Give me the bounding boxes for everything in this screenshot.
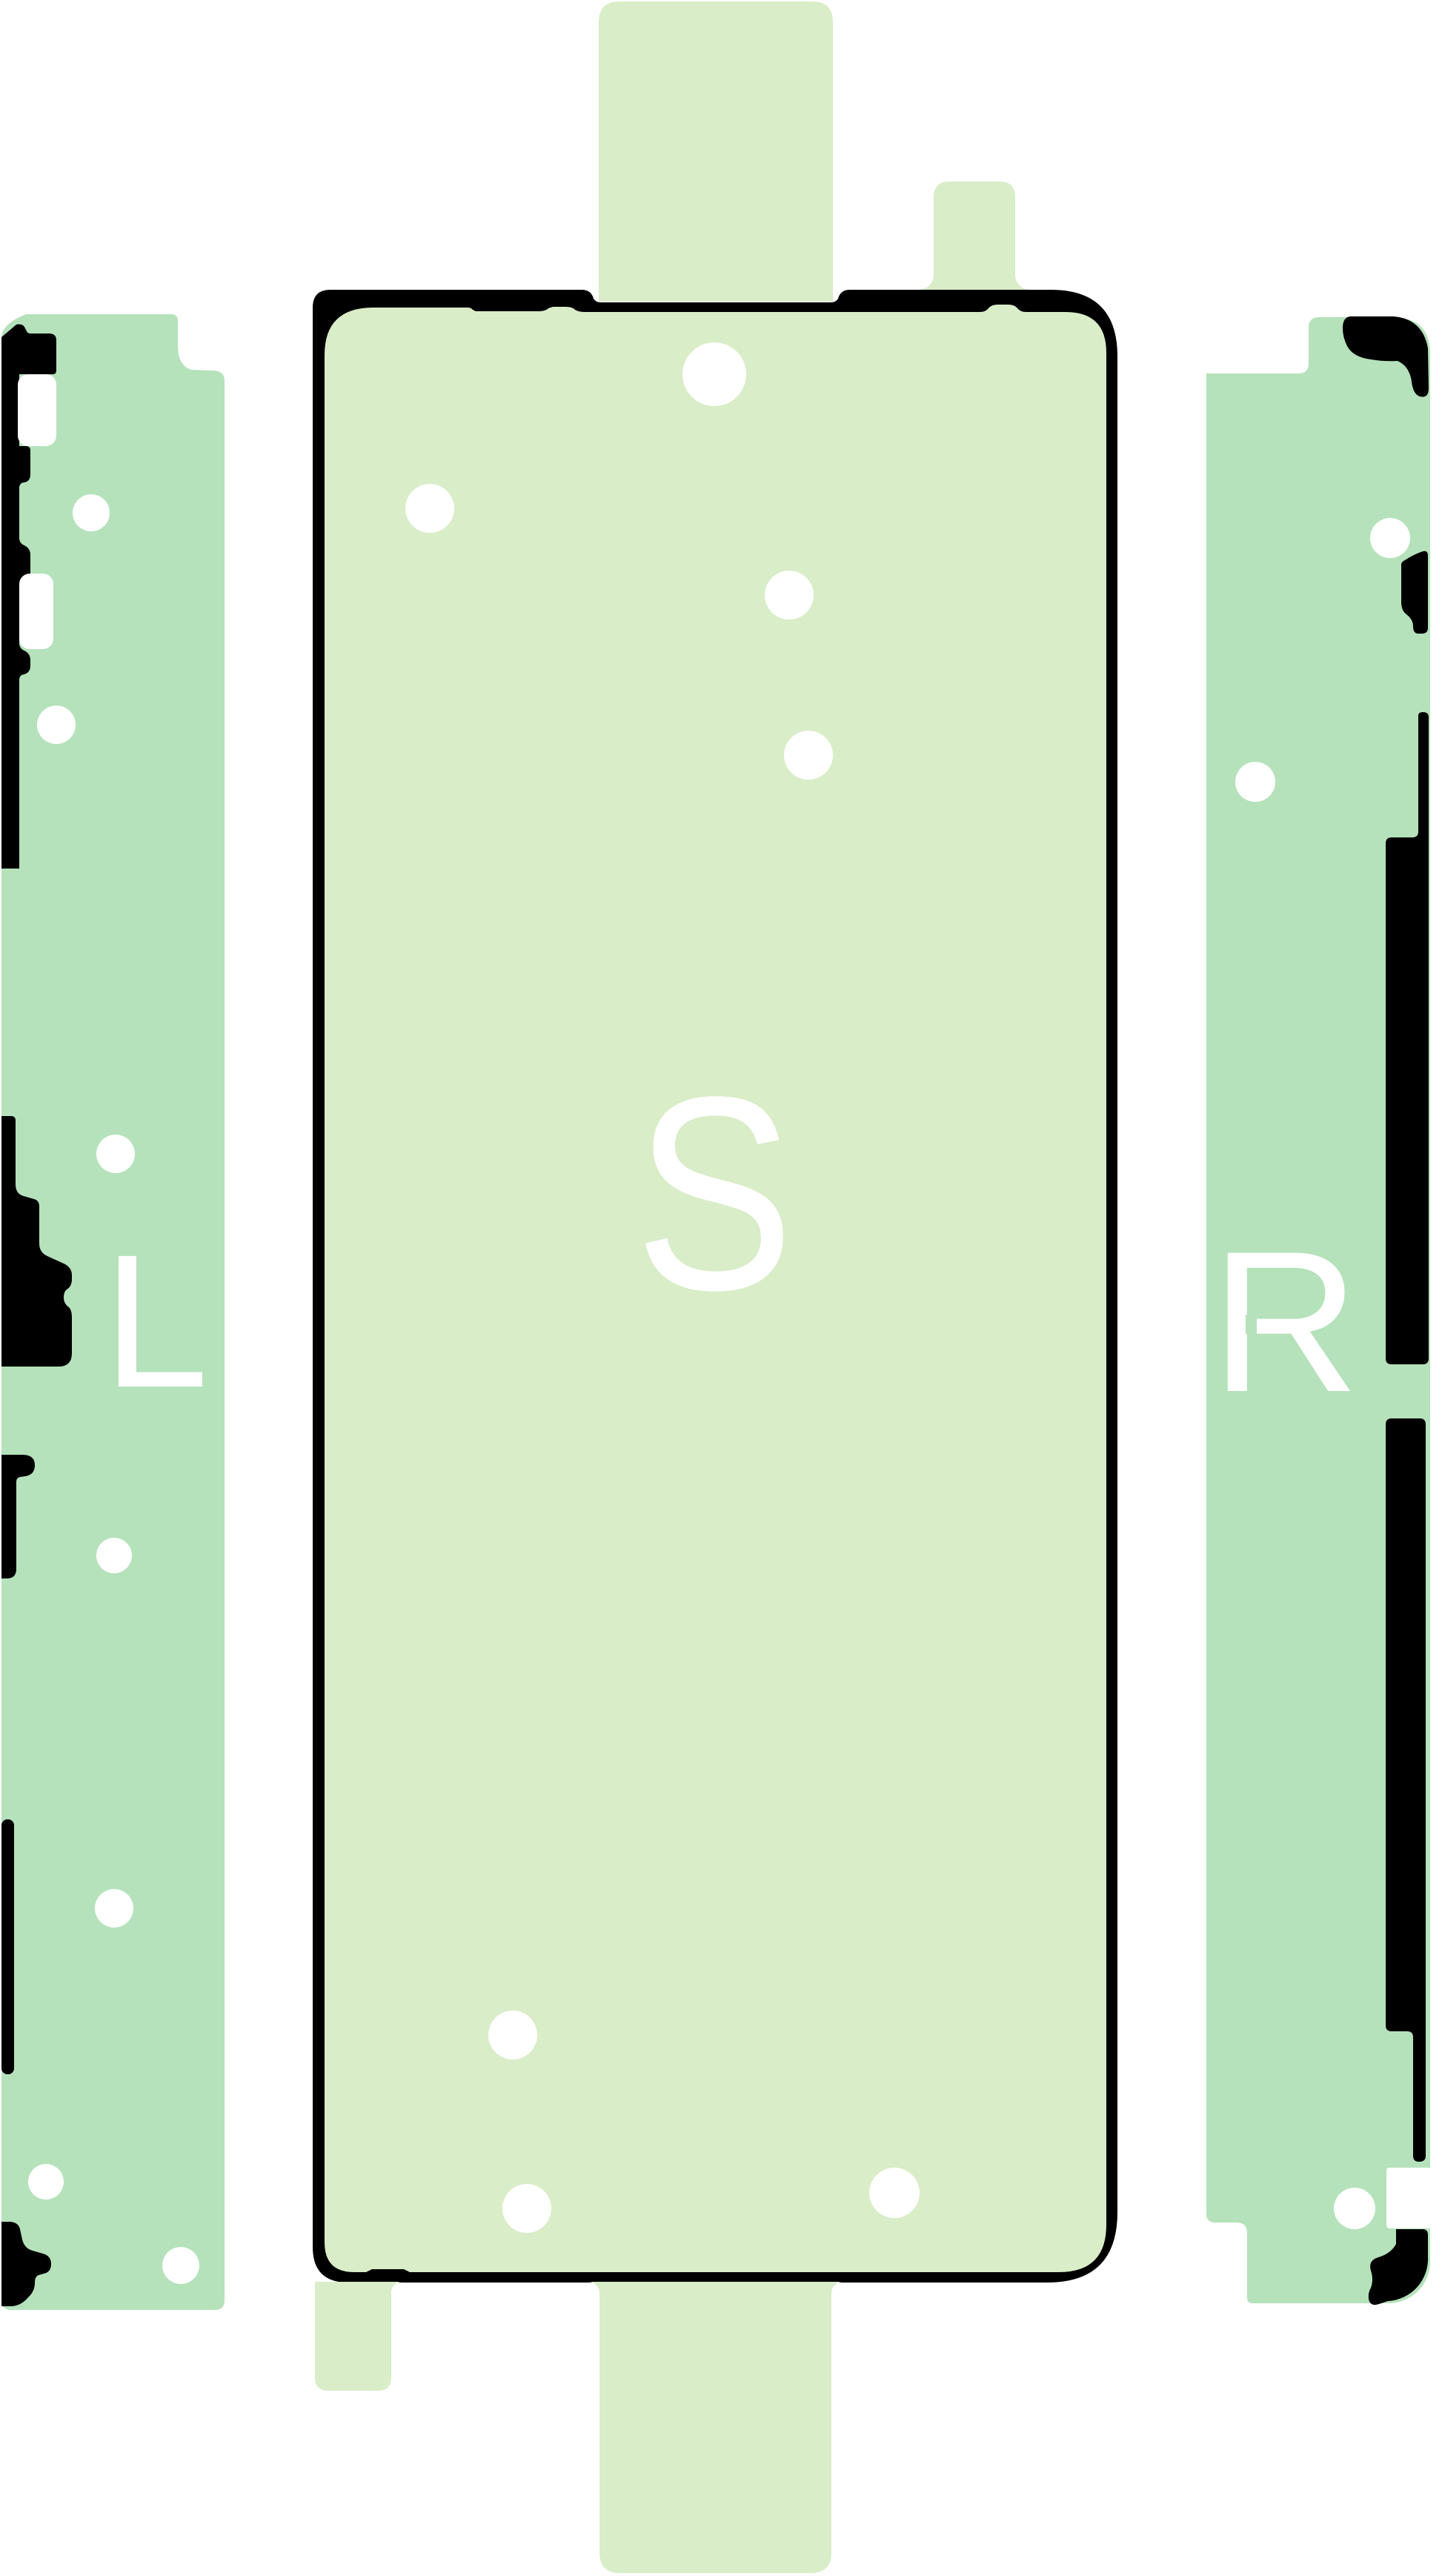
svg-text:L: L (103, 1215, 208, 1427)
svg-text:R: R (1211, 1210, 1360, 1434)
svg-text:S: S (635, 1039, 794, 1347)
